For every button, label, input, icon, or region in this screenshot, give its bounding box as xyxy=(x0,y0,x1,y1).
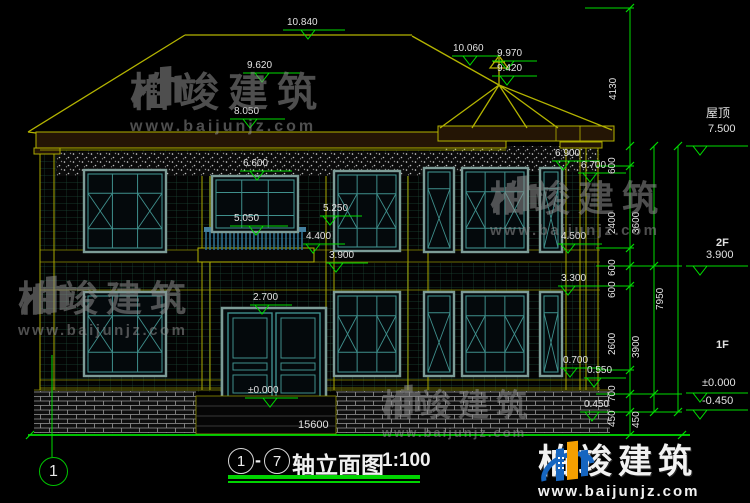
title-axis-start: 1 xyxy=(237,453,245,470)
elev-5050: 5.050 xyxy=(234,214,259,224)
dim-7950: 7950 xyxy=(656,288,666,310)
elev-3900: 3.900 xyxy=(329,251,354,261)
elev-2700: 2.700 xyxy=(253,293,278,303)
title-axis-end: 7 xyxy=(273,453,281,470)
dim-600c: 600 xyxy=(608,281,618,298)
elev-5250: 5.250 xyxy=(323,204,348,214)
elev-6600: 6.600 xyxy=(243,159,268,169)
pavilion-hip-roof xyxy=(440,85,612,130)
f1-zero-value: ±0.000 xyxy=(702,378,736,388)
f1-minus-value: -0.450 xyxy=(702,396,733,406)
watermark-right: 柏竣建筑 www.baijunjz.com xyxy=(490,170,666,239)
dim-600b: 600 xyxy=(608,259,618,276)
title-axis-end-circle: 7 xyxy=(264,448,290,474)
roof-level-value: 7.500 xyxy=(708,124,736,134)
window xyxy=(334,292,400,376)
title-underline-thick xyxy=(228,475,420,479)
watermark-logo-icon xyxy=(490,170,546,226)
elev-10840: 10.840 xyxy=(287,18,318,28)
f2-label: 2F xyxy=(716,238,729,248)
f1-label: 1F xyxy=(716,340,729,350)
watermark-top: 柏竣建筑 www.baijunjz.com xyxy=(130,60,326,136)
dim-2600: 2600 xyxy=(608,333,618,355)
title-underline-thin xyxy=(228,481,420,483)
window xyxy=(540,292,562,376)
title-axis-start-circle: 1 xyxy=(228,448,254,474)
dim-3900: 3900 xyxy=(632,336,642,358)
elev-9420: 9.420 xyxy=(497,64,522,74)
elev-9970: 9.970 xyxy=(497,49,522,59)
elev-zero-door: ±0.000 xyxy=(248,386,279,396)
roof-label: 屋顶 xyxy=(706,108,730,118)
brand-logo-color: 柏竣建筑 www.baijunjz.com xyxy=(538,434,699,500)
elev-0450: 0.450 xyxy=(584,400,609,410)
balcony-slab xyxy=(198,248,314,262)
dim-4130: 4130 xyxy=(609,78,619,100)
elev-3300: 3.300 xyxy=(561,274,586,284)
drawing-scale: 1:100 xyxy=(382,450,431,472)
window xyxy=(462,292,528,376)
window xyxy=(84,170,166,252)
cad-elevation-screenshot: 10.840 9.620 8.050 10.060 9.970 9.420 6.… xyxy=(0,0,750,503)
dim-700: 700 xyxy=(608,385,618,402)
elev-4400: 4.400 xyxy=(306,232,331,242)
watermark-left: 柏竣建筑 www.baijunjz.com xyxy=(18,270,194,339)
elev-0700: 0.700 xyxy=(563,356,588,366)
elev-0550: 0.550 xyxy=(587,366,612,376)
title-dash: - xyxy=(255,450,261,471)
dim-450b: 450 xyxy=(632,411,642,428)
elev-10060: 10.060 xyxy=(453,44,484,54)
watermark-bottom: 柏竣建筑 www.baijunjz.com xyxy=(382,380,534,440)
watermark-logo-icon xyxy=(18,270,76,328)
elev-6900: 6.900 xyxy=(555,149,580,159)
axis-bubble-1-label: 1 xyxy=(49,463,58,481)
brand-logo-icon xyxy=(538,434,598,496)
f2-level-value: 3.900 xyxy=(706,250,734,260)
dim-450a: 450 xyxy=(608,410,618,427)
watermark-logo-icon xyxy=(382,380,428,426)
storey-level-lines xyxy=(686,146,748,410)
dim-total-width: 15600 xyxy=(298,420,329,430)
watermark-logo-icon xyxy=(130,60,192,122)
axis-bubble-1: 1 xyxy=(39,457,68,486)
watermark-url: www.baijunjz.com xyxy=(382,425,534,440)
